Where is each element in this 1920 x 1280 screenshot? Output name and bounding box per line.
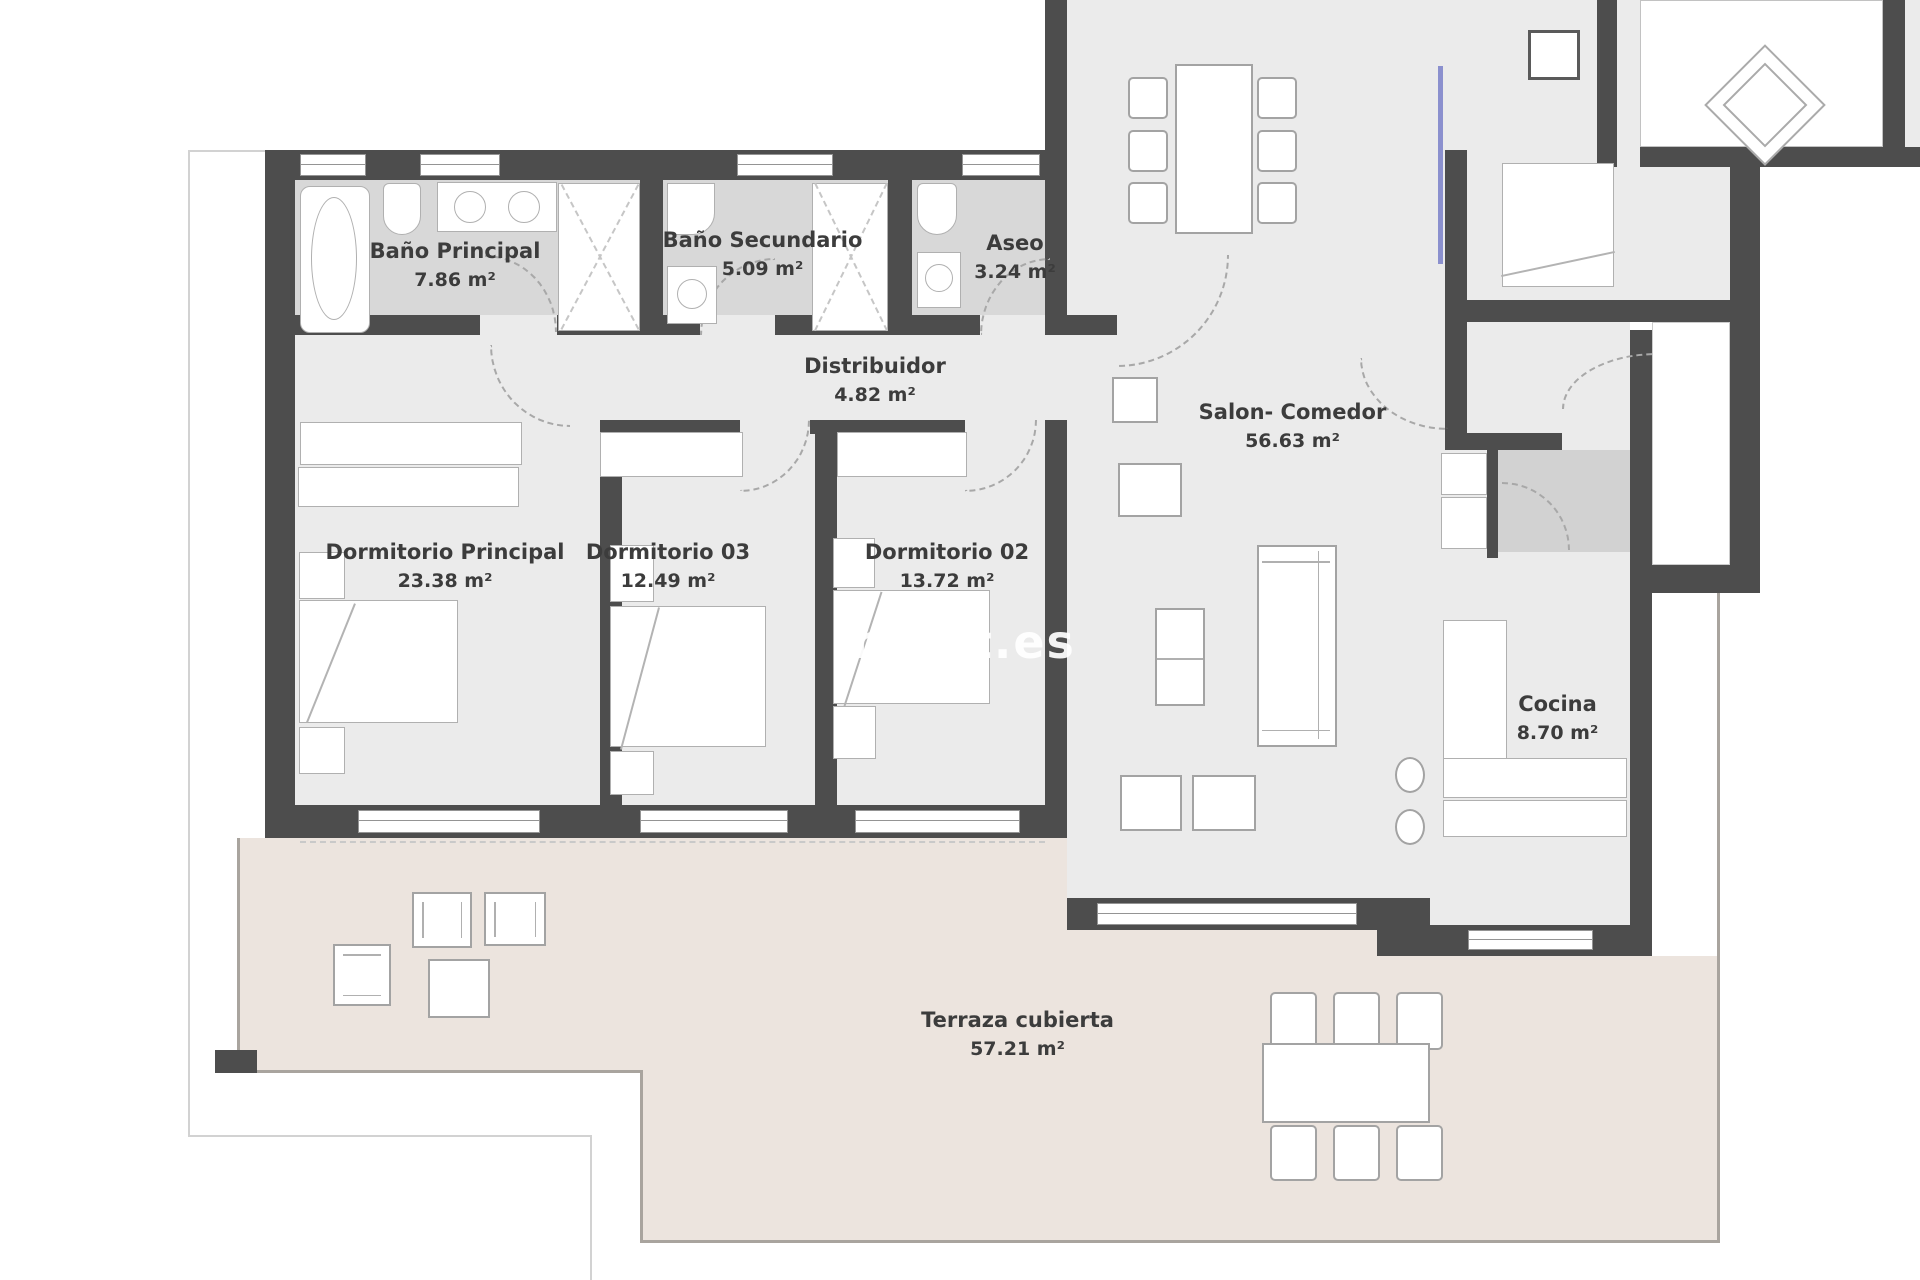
cushion-line: [422, 902, 424, 938]
floor-plan: Baño Principal 7.86 m² Baño Secundario 5…: [0, 0, 1920, 1280]
wall: [1377, 898, 1430, 956]
wall: [265, 150, 295, 838]
armchair: [1118, 463, 1182, 517]
loveseat: [1155, 608, 1205, 706]
kitchen-counter: [1443, 758, 1627, 798]
property-line: [188, 150, 267, 152]
armchair: [1192, 775, 1256, 831]
bed-fold-line: [620, 607, 660, 750]
watermark: ment.es: [852, 615, 1076, 669]
nightstand: [299, 727, 345, 774]
cushion-line: [535, 902, 537, 937]
window: [962, 154, 1040, 176]
sofa: [1257, 545, 1337, 747]
dining-table: [1175, 64, 1253, 234]
wardrobe: [300, 422, 522, 465]
toilet: [383, 183, 421, 235]
dining-chair: [1128, 130, 1168, 172]
terrace-chair: [1396, 1125, 1443, 1181]
terrace-chair: [1270, 1125, 1317, 1181]
dining-chair: [1257, 77, 1297, 119]
terrace-armchair: [484, 892, 546, 946]
wall: [1730, 165, 1760, 593]
bed: [1502, 163, 1614, 287]
sink-vanity: [437, 182, 557, 232]
wardrobe: [837, 432, 967, 477]
sofa-back-line: [1318, 551, 1320, 739]
room-label-dormitorio-03: Dormitorio 03 12.49 m²: [568, 538, 768, 595]
wall: [1487, 450, 1498, 558]
window-track: [300, 841, 1045, 843]
terraza-border: [1717, 593, 1720, 1243]
terrace-chair: [1396, 992, 1443, 1050]
room-label-cocina: Cocina 8.70 m²: [1460, 690, 1655, 747]
terrace-chair: [1270, 992, 1317, 1050]
side-table: [1112, 377, 1158, 423]
terrace-dining-table: [1262, 1043, 1430, 1123]
armchair: [1120, 775, 1182, 831]
accent-line: [1438, 66, 1443, 264]
wall: [1445, 300, 1730, 322]
stool: [1395, 757, 1425, 793]
window: [358, 810, 540, 833]
terrace-armchair: [412, 892, 472, 948]
room-label-salon-comedor: Salon- Comedor 56.63 m²: [1170, 398, 1415, 455]
wall: [265, 150, 1067, 180]
kitchen-counter: [1443, 800, 1627, 837]
wardrobe: [298, 467, 519, 507]
terraza-border: [640, 1240, 1720, 1243]
nightstand: [610, 751, 654, 795]
terraza-border: [237, 1070, 643, 1073]
cushion-line: [494, 902, 496, 937]
dining-chair: [1128, 182, 1168, 224]
shaft: [1652, 322, 1730, 565]
dining-chair: [1128, 77, 1168, 119]
room-label-distribuidor: Distribuidor 4.82 m²: [765, 352, 985, 409]
sofa-arm-line: [1262, 561, 1330, 563]
bed-fold-line: [1501, 251, 1615, 277]
property-line: [590, 1135, 592, 1280]
property-line: [188, 152, 190, 1137]
bed: [299, 600, 458, 723]
sofa-arm-line: [1262, 730, 1330, 732]
room-label-dormitorio-02: Dormitorio 02 13.72 m²: [847, 538, 1047, 595]
cushion-line: [461, 902, 463, 938]
room-label-dormitorio-principal: Dormitorio Principal 23.38 m²: [320, 538, 570, 595]
kitchen-appliance: [1441, 497, 1487, 549]
terraza-floor: [1645, 956, 1718, 1241]
terraza-border: [237, 838, 240, 1073]
room-label-terraza-cubierta: Terraza cubierta 57.21 m²: [890, 1006, 1145, 1063]
window: [1097, 903, 1357, 925]
room-label-aseo: Aseo 3.24 m²: [930, 229, 1100, 286]
terrace-chair: [1333, 1125, 1380, 1181]
wall: [888, 180, 912, 315]
window: [1468, 930, 1593, 950]
terraza-border: [640, 1070, 643, 1243]
terrace-chair: [1333, 992, 1380, 1050]
sink-icon: [508, 191, 540, 223]
wall: [1597, 0, 1617, 167]
wall: [1630, 330, 1652, 956]
bed: [610, 606, 766, 747]
window: [737, 154, 833, 176]
wall: [1645, 565, 1760, 593]
bed-fold-line: [306, 603, 356, 722]
room-label-bano-secundario: Baño Secundario 5.09 m²: [640, 226, 885, 283]
window: [420, 154, 500, 176]
distribuidor-opening-floor: [1045, 335, 1067, 420]
window: [640, 810, 788, 833]
terrace-armchair: [333, 944, 391, 1006]
terrace-table: [428, 959, 490, 1018]
dining-chair: [1257, 130, 1297, 172]
stool: [1395, 809, 1425, 845]
wall-mounted-unit: [1528, 30, 1580, 80]
dining-chair: [1257, 182, 1297, 224]
wardrobe: [600, 432, 743, 477]
kitchen-appliance: [1441, 453, 1487, 495]
washer-drum: [677, 279, 707, 309]
nightstand: [833, 706, 876, 759]
sink-icon: [454, 191, 486, 223]
property-line: [188, 1135, 592, 1137]
wall: [215, 1050, 257, 1073]
cushion-line: [343, 954, 381, 956]
window: [855, 810, 1020, 833]
window: [300, 154, 366, 176]
room-label-bano-principal: Baño Principal 7.86 m²: [330, 237, 580, 294]
decor-diamond-inner: [1723, 63, 1808, 148]
cushion-line: [343, 995, 381, 997]
cushion-line: [1157, 658, 1203, 660]
terraza-floor: [640, 1073, 1067, 1241]
toilet: [917, 183, 957, 235]
wall: [1883, 0, 1905, 147]
